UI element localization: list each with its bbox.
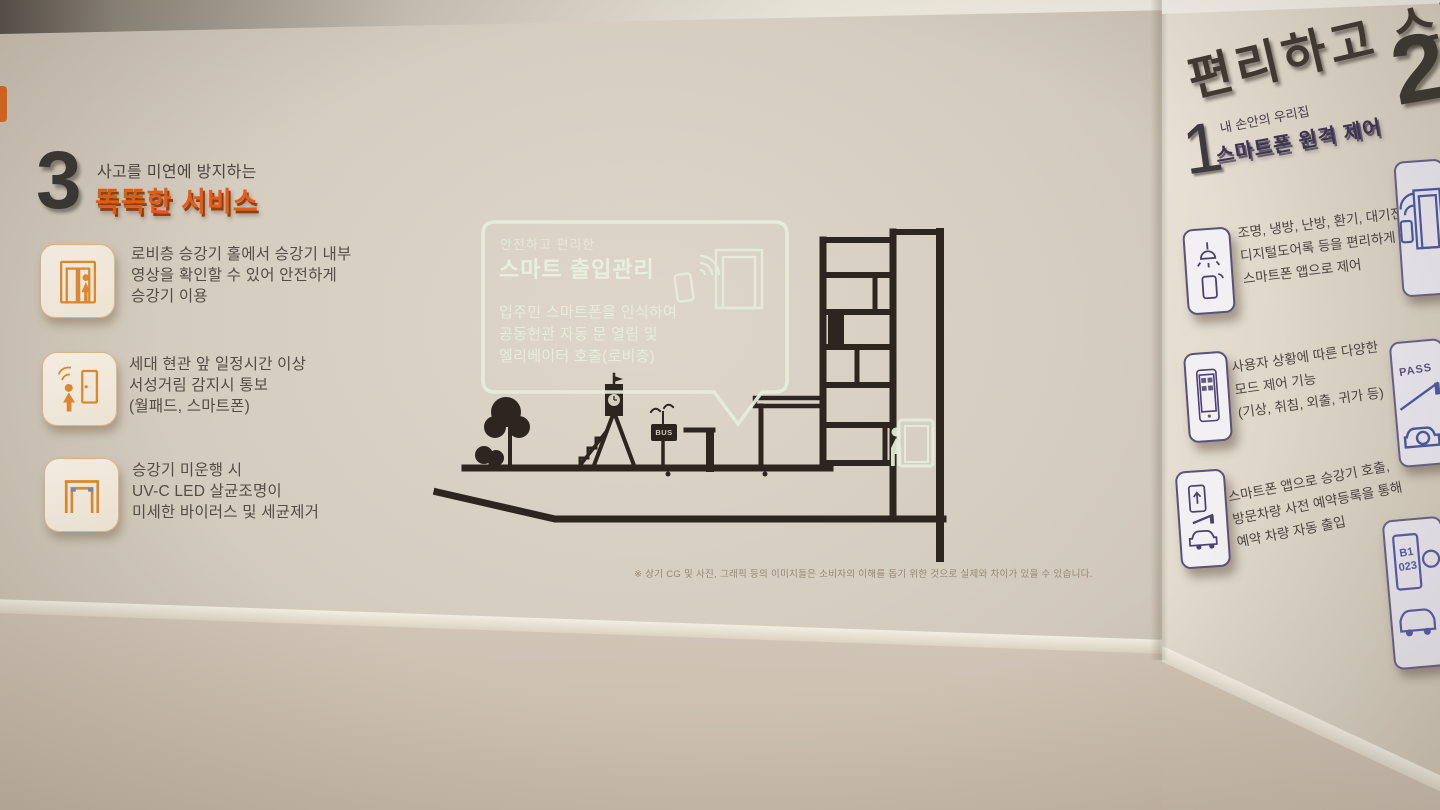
service-text-1: 로비층 승강기 홀에서 승강기 내부 영상을 확인할 수 있어 안전하게 승강기… xyxy=(131,244,351,307)
mode-phone-icon xyxy=(1189,359,1226,435)
elevator-cctv-icon xyxy=(51,254,105,308)
exhibition-room-photo: 3 사고를 미연에 방지하는 똑똑한 서비스 로비층 승강기 홀에서 승강기 내… xyxy=(0,0,1440,810)
pass-gate-icon xyxy=(1391,340,1440,462)
remote-tile-parking-access xyxy=(1175,468,1232,569)
disclaimer-text: ※ 상기 CG 및 사진, 그래픽 등의 이미지들은 소비자의 이해를 돕기 위… xyxy=(634,566,1093,580)
bubble-eyebrow: 안전하고 편리한 xyxy=(500,234,595,253)
remote-tile-home-control xyxy=(1182,226,1236,315)
bubble-line-2: 공동현관 자동 문 열림 및 xyxy=(499,323,658,344)
loitering-alert-icon xyxy=(53,362,107,416)
left-edge-orange-sign xyxy=(0,86,7,122)
remote-tile-mode-control xyxy=(1183,351,1233,444)
right-lower-wall xyxy=(1162,658,1440,810)
bubble-line-1: 입주민 스마트폰을 인식하여 xyxy=(499,301,677,322)
left-section-subtitle: 사고를 미연에 방지하는 xyxy=(97,158,257,182)
service-text-3: 승강기 미운행 시 UV-C LED 살균조명이 미세한 바이러스 및 세균제거 xyxy=(132,460,319,523)
bubble-title: 스마트 출입관리 xyxy=(499,252,655,284)
home-control-icon xyxy=(1189,235,1230,307)
service-tile-elevator-cctv xyxy=(40,244,115,318)
service-tile-loitering-alert xyxy=(42,352,117,426)
parking-access-icon xyxy=(1181,477,1225,561)
parking-sign-icon xyxy=(1384,518,1440,664)
door-access-icon xyxy=(1395,161,1440,292)
bubble-line-3: 엘리베이터 호출(로비층) xyxy=(499,345,655,366)
wall-corner-shadow xyxy=(1150,0,1168,660)
section-number-3: 3 xyxy=(36,134,82,228)
service-text-2: 세대 현관 앞 일정시간 이상 서성거림 감지시 통보 (월패드, 스마트폰) xyxy=(129,354,306,417)
phone-door-access-icon xyxy=(674,250,762,308)
service-tile-uv-sterilization xyxy=(44,458,119,532)
uv-sterilization-icon xyxy=(55,468,109,522)
left-section-title: 똑똑한 서비스 xyxy=(95,180,259,219)
parking-floor-label: B1 xyxy=(1399,546,1415,560)
